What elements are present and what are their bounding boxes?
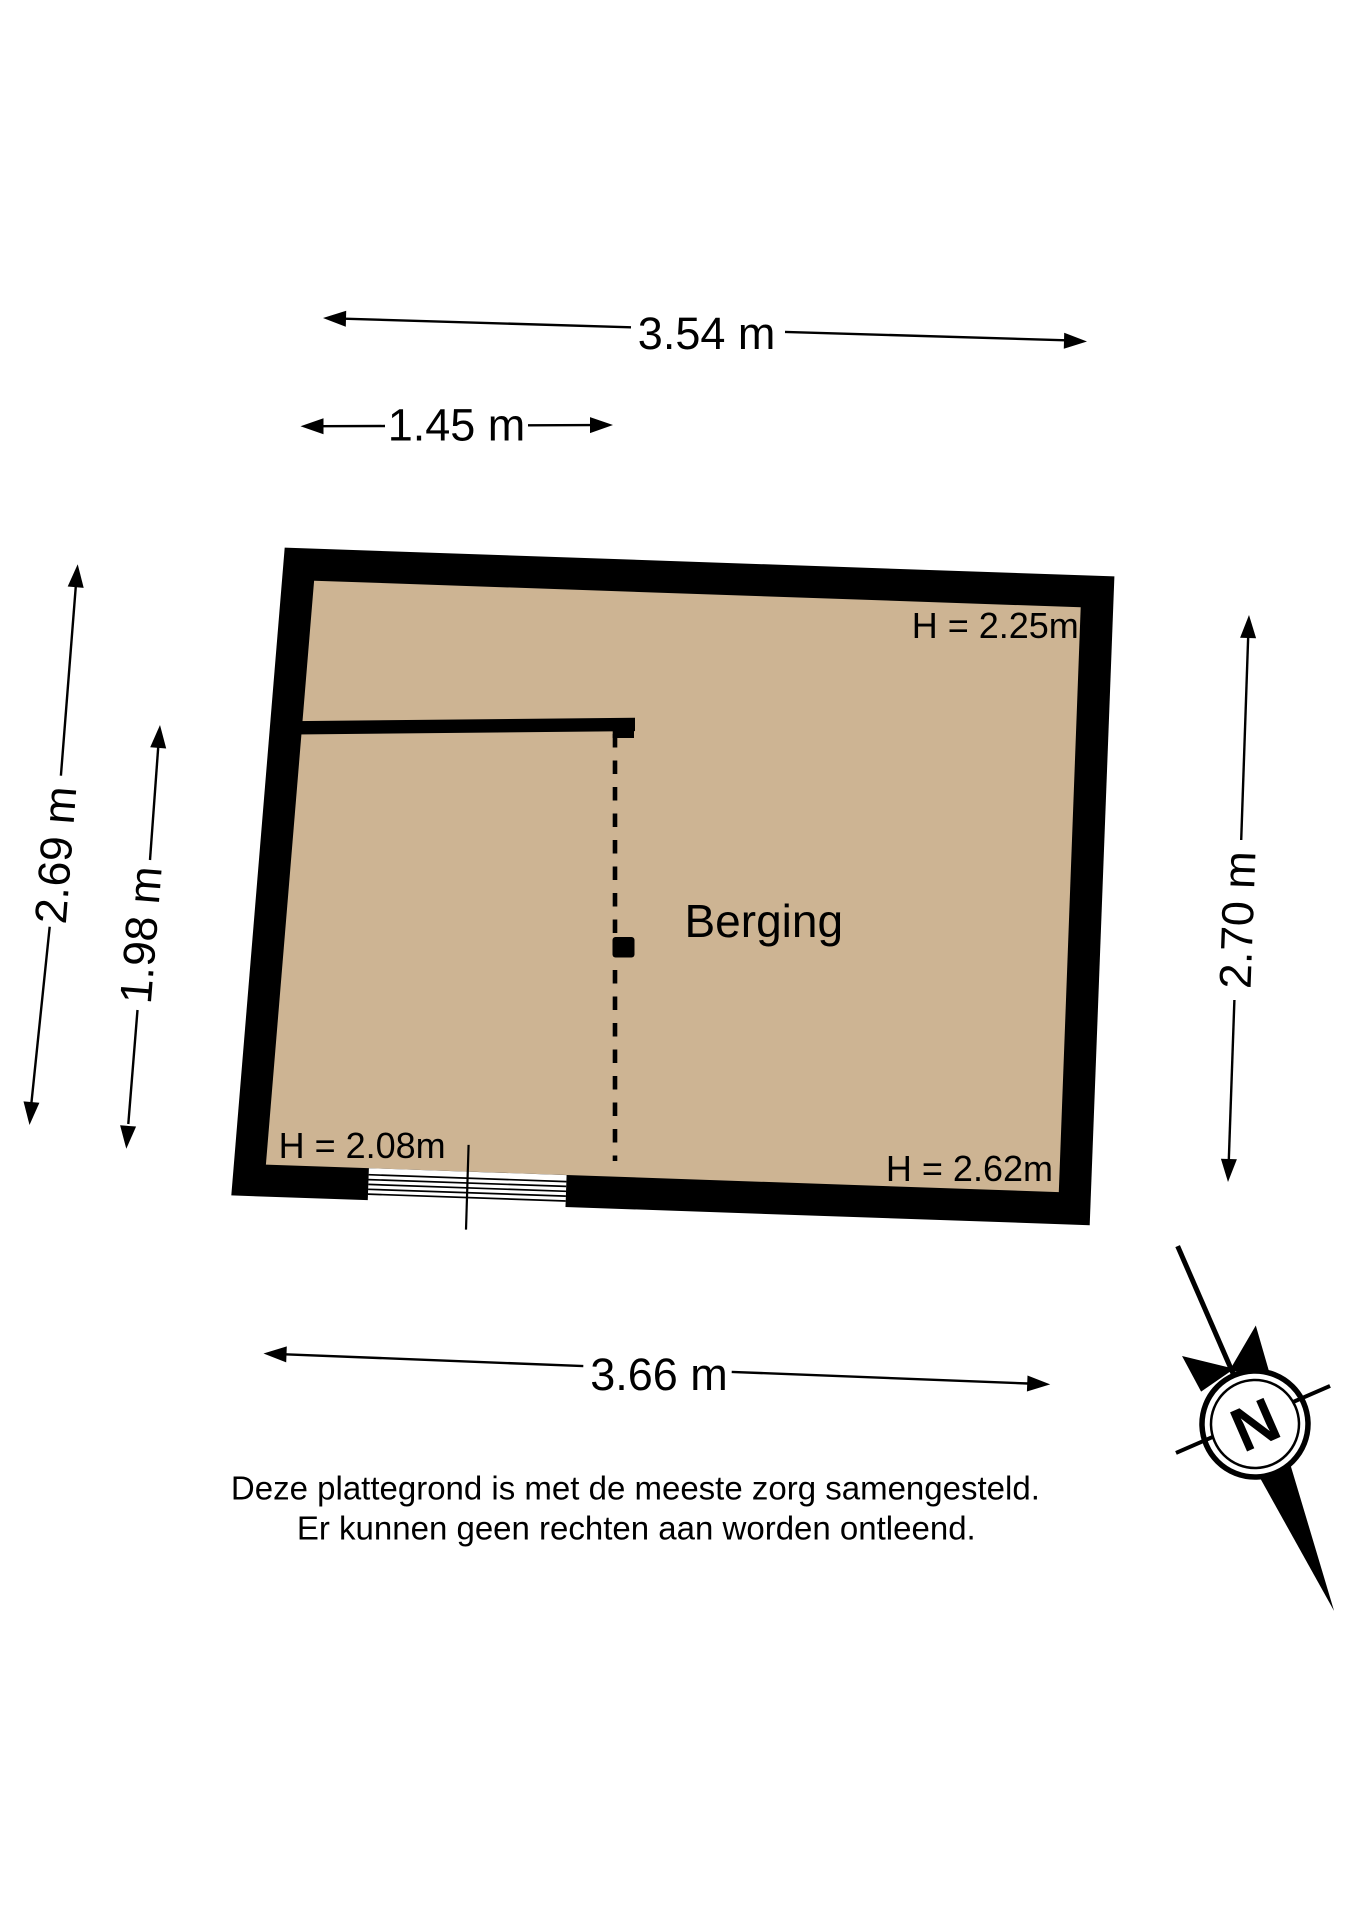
svg-text:2.69 m: 2.69 m bbox=[25, 785, 86, 926]
svg-text:3.54 m: 3.54 m bbox=[638, 308, 776, 359]
svg-text:Er kunnen geen rechten aan wor: Er kunnen geen rechten aan worden ontlee… bbox=[297, 1509, 976, 1546]
svg-text:Deze plattegrond is met de mee: Deze plattegrond is met de meeste zorg s… bbox=[231, 1469, 1040, 1506]
svg-text:3.66 m: 3.66 m bbox=[590, 1349, 728, 1400]
svg-text:H = 2.62m: H = 2.62m bbox=[886, 1148, 1053, 1189]
svg-text:Berging: Berging bbox=[685, 895, 844, 947]
svg-text:2.70 m: 2.70 m bbox=[1209, 850, 1265, 989]
svg-text:H = 2.08m: H = 2.08m bbox=[279, 1125, 446, 1166]
svg-text:1.45 m: 1.45 m bbox=[388, 400, 526, 451]
svg-text:H = 2.25m: H = 2.25m bbox=[912, 605, 1079, 646]
